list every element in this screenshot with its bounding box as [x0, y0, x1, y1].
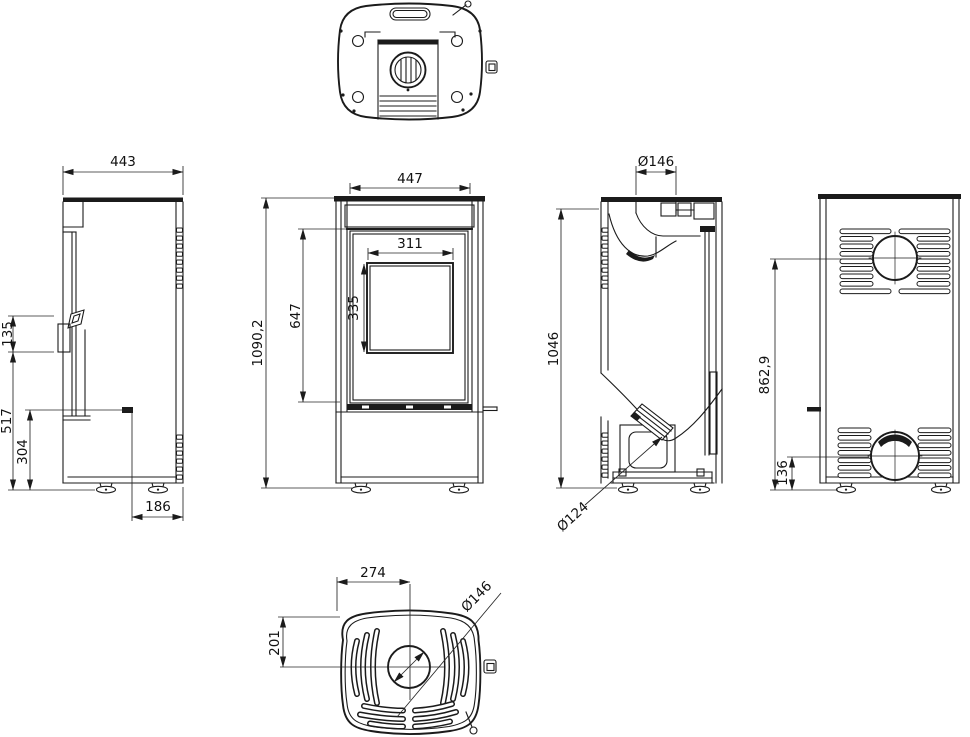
- dim-top-center-x: 274: [360, 565, 386, 581]
- paper-background: [0, 0, 970, 737]
- top-plate-band: [601, 197, 722, 202]
- dim-front-width: 447: [397, 171, 423, 187]
- top-plate-band: [334, 196, 485, 202]
- dim-side-depth: 443: [110, 154, 136, 170]
- dim-total-height: 1090,2: [250, 319, 266, 366]
- dim-rear-flue-height: 862,9: [757, 356, 773, 395]
- technical-drawing-page: 443 135 517 304 186: [0, 0, 970, 737]
- dim-side-handle-height: 135: [0, 321, 16, 347]
- top-plate-band: [63, 198, 183, 203]
- dim-side-base-height: 304: [15, 439, 31, 465]
- dim-flue-diameter: Ø146: [638, 154, 674, 170]
- dim-section-height: 1046: [546, 332, 562, 366]
- dim-rear-inlet-height: 136: [775, 460, 791, 486]
- top-plate-band: [818, 194, 961, 199]
- dim-glass-width: 311: [397, 236, 423, 252]
- stove-dimensional-drawing: 443 135 517 304 186: [0, 0, 970, 737]
- top-plate-band: [378, 40, 438, 45]
- dim-glass-height: 335: [346, 295, 362, 321]
- latch-tab: [807, 407, 821, 412]
- dim-door-height: 647: [288, 303, 304, 329]
- dim-side-front-height: 517: [0, 408, 15, 434]
- dim-top-center-y: 201: [267, 630, 283, 656]
- dim-side-base-depth: 186: [145, 499, 171, 515]
